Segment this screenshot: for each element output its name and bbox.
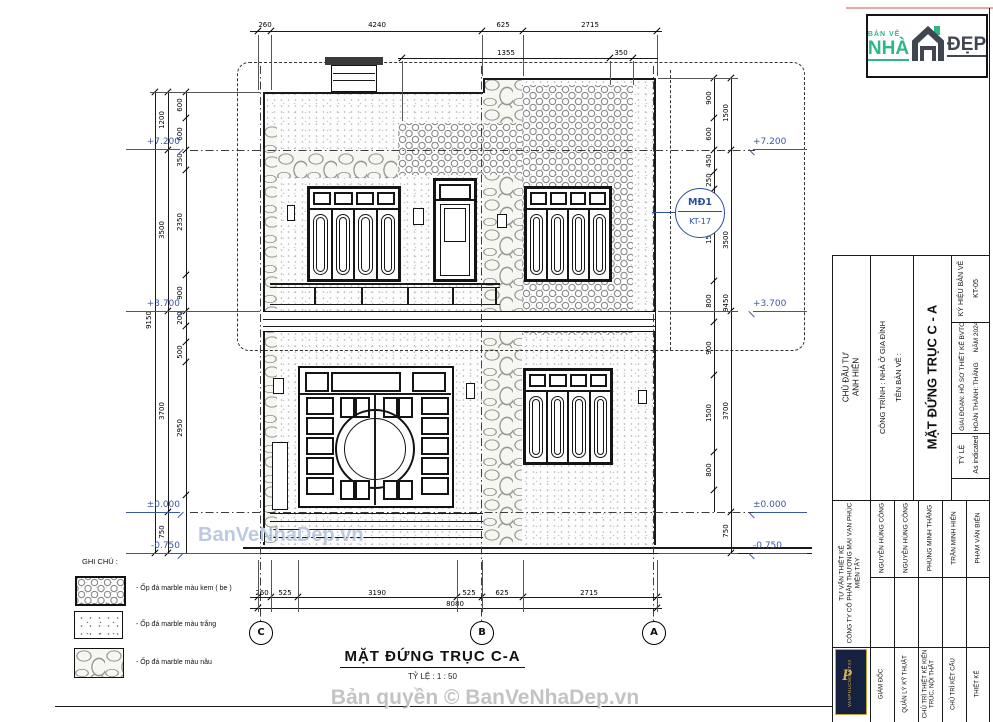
dim-label: 2350 (176, 213, 184, 231)
vanphuc-logo: P VANPHUCMIENTAY (835, 649, 867, 715)
railing-post (452, 287, 454, 304)
window-transom (526, 371, 610, 392)
window-leaves (527, 210, 609, 279)
wall-lamp (413, 208, 424, 225)
dim-label: 900 (705, 91, 713, 104)
legend-swatch-stone (74, 648, 124, 678)
leaf (548, 210, 569, 279)
titleblock-border (870, 577, 990, 578)
axis-line-a (653, 66, 654, 621)
level-marker: -0.750 (126, 541, 180, 554)
pane (570, 192, 587, 205)
leaf (378, 210, 399, 279)
legend-label: - Ốp đá marble màu nâu (136, 659, 212, 667)
pane (550, 192, 567, 205)
investor-name: ANH HIỂN (852, 358, 862, 396)
legend-swatch-hex (75, 576, 126, 606)
gate-square (398, 397, 413, 418)
railing-top (270, 283, 500, 285)
louver (529, 396, 543, 458)
person-name: NGUYỄN HÙNG CÔNG (895, 500, 919, 577)
titleblock-border (951, 478, 990, 479)
ext-line (271, 560, 272, 612)
pilaster (272, 442, 288, 510)
name-text: NGUYỄN HÙNG CÔNG (878, 503, 888, 573)
pane (589, 192, 606, 205)
level-marker: ±0.000 (753, 500, 807, 513)
role-text: CHỦ TRÌ THIẾT KẾ KIẾN TRÚC, NỘI THẤT (923, 648, 937, 721)
dim-label: 3700 (158, 402, 166, 420)
line (333, 73, 375, 74)
window-ground-right (523, 368, 613, 465)
name-text: TRẦN MINH HIỂN (950, 511, 960, 564)
house-icon (908, 25, 948, 68)
dim-label: 1355 (497, 49, 515, 57)
step-line (270, 521, 483, 522)
dim-label: 800 (705, 294, 713, 307)
window-upper-right (524, 186, 612, 282)
logo-text-left: BẢN VẼ NHÀ (868, 31, 909, 61)
name-text: PHÙNG MINH THẮNG (926, 505, 936, 571)
ext-line (523, 560, 524, 612)
pane (356, 192, 374, 205)
level-marker: -0.750 (753, 541, 807, 554)
drawing-sheet: 260 4240 625 2715 1355 350 260 525 3190 … (0, 0, 993, 722)
parapet-step (483, 78, 485, 93)
level-marker: +7.200 (753, 137, 807, 150)
role-text: THIẾT KẾ (974, 671, 981, 698)
person-name: TRẦN MINH HIỂN (943, 500, 967, 577)
name-text: NGUYỄN HÙNG CÔNG (902, 503, 912, 573)
titleblock-sheet-title: MẶT ĐỨNG TRỤC C - A (914, 255, 952, 500)
gate-panel (421, 437, 449, 455)
legend-label: - Ốp đá marble màu kem ( be ) (136, 585, 232, 593)
louver (551, 214, 564, 275)
dim-label: 500 (176, 345, 184, 358)
level-line-7200 (190, 150, 755, 151)
dim-label: 2715 (580, 589, 598, 597)
leaf (310, 210, 333, 279)
step-line (270, 513, 483, 514)
dim-label: 1500 (705, 404, 713, 422)
consultant-label: TƯ VẤN THIẾT KẾ (839, 545, 847, 601)
leaf (526, 392, 548, 462)
dim-label: 525 (462, 589, 475, 597)
dim-label: 600 (705, 127, 713, 140)
gate-panel (306, 417, 334, 435)
dim-line (250, 31, 662, 32)
ext-line (298, 560, 299, 612)
dim-label-total: 8080 (446, 600, 464, 608)
callout-sheet: KT-17 (676, 217, 724, 226)
code-label: KÝ HIỆU BẢN VẼ (957, 261, 967, 317)
ext-line (482, 560, 483, 612)
dim-line (155, 92, 156, 553)
dim-label: 350 (614, 49, 627, 57)
dim-label: 2715 (581, 21, 599, 29)
pane (313, 192, 331, 205)
grid-bubble-c: C (249, 621, 273, 645)
watermark-mid: BanVeNhaDep.vn (198, 524, 364, 547)
callout-leader (652, 212, 676, 213)
dim-label: 350 (176, 153, 184, 166)
ext-line (402, 61, 403, 121)
dim-label: 900 (176, 286, 184, 299)
sheet-name-label: TÊN BẢN VẼ : (894, 353, 904, 402)
floor-slab (263, 311, 655, 332)
dim-label: 2950 (176, 419, 184, 437)
dim-label-total: 9150 (145, 311, 153, 329)
gate-square (355, 480, 370, 500)
dim-label: 4240 (368, 21, 386, 29)
gate-panel (421, 397, 449, 415)
code-value: KT-05 (972, 279, 982, 298)
gate-transom-pane (305, 372, 329, 392)
louver (551, 396, 565, 458)
ext-line (658, 553, 738, 554)
dim-line (168, 92, 169, 553)
dim-label: 625 (496, 21, 509, 29)
line (333, 80, 375, 81)
leaf (591, 392, 611, 462)
leaf (333, 210, 356, 279)
finish-label: HOÀN THÀNH: THÁNG (972, 362, 982, 431)
dim-label: 800 (705, 463, 713, 476)
person-name: PHẠM VĂN BIỂN (967, 500, 991, 577)
gate-panel (306, 397, 334, 415)
watermark-bottom: Bản quyền © BanVeNhaDep.vn (295, 686, 675, 710)
ext-line (258, 35, 259, 90)
louver (594, 396, 608, 458)
dim-line (250, 608, 662, 609)
dashed-line-vertical (670, 70, 671, 350)
dim-line (398, 58, 658, 59)
role-text: GIÁM ĐỐC (878, 669, 885, 699)
legend-swatch-dots (74, 611, 123, 639)
gate-square (398, 480, 413, 500)
ext-line (271, 35, 272, 90)
leaf (569, 392, 591, 462)
dim-label: 450 (705, 154, 713, 167)
person-role: GIÁM ĐỐC (870, 648, 894, 721)
dim-label: 3700 (722, 402, 730, 420)
dim-line (714, 78, 715, 512)
window-leaves (310, 210, 398, 279)
gate-transom-pane (331, 372, 401, 392)
titleblock-project: CÔNG TRÌNH : NHÀ Ở GIA ĐÌNH TÊN BẢN VẼ : (869, 255, 912, 500)
pane (529, 374, 546, 387)
louver (572, 396, 586, 458)
dim-label: 3500 (722, 231, 730, 249)
callout-code: MĐ1 (676, 197, 724, 208)
titleblock-consultant: TƯ VẤN THIẾT KẾ CÔNG TY CỔ PHẦN THƯƠNG M… (832, 500, 870, 647)
louver (572, 214, 585, 275)
dim-label: 1200 (158, 111, 166, 129)
person-role: THIẾT KẾ (966, 648, 990, 721)
scale-value: As indicated (972, 435, 982, 473)
window-leaves (526, 392, 610, 462)
dim-label: 750 (158, 525, 166, 538)
level-marker: +3.700 (753, 299, 807, 312)
wall-lamp (497, 214, 507, 228)
titleblock-code: KÝ HIỆU BẢN VẼ KT-05 (950, 255, 989, 322)
gate-panel (421, 477, 449, 495)
dim-label: 1500 (722, 104, 730, 122)
parapet-top-right (483, 78, 655, 80)
gate-square (340, 480, 355, 500)
dim-label: 750 (722, 524, 730, 537)
leaf (355, 210, 378, 279)
door-panel-inner (444, 208, 466, 242)
titleblock-investor: CHỦ ĐẦU TƯ ANH HIỂN (833, 255, 871, 500)
consultant-company: CÔNG TY CỔ PHẦN THƯƠNG MẠI VẠN PHÚC MIỀN… (847, 500, 863, 647)
gate-panel (306, 477, 334, 495)
dim-label: 3500 (158, 221, 166, 239)
ext-line (658, 311, 738, 312)
callout-bubble: MĐ1 KT-17 (675, 188, 725, 238)
ext-line (657, 35, 658, 76)
sheet-title: MẶT ĐỨNG TRỤC C - A (926, 305, 940, 450)
person-name: NGUYỄN HÙNG CÔNG (871, 500, 895, 577)
drawing-scale-note: TỶ LỆ : 1 : 50 (380, 672, 485, 682)
railing-post (361, 287, 363, 304)
railing-post (314, 287, 316, 304)
leaf (569, 210, 590, 279)
logo-name-text: NHÀ (868, 39, 909, 61)
level-marker: +3.700 (126, 299, 180, 312)
leaf (548, 392, 570, 462)
dim-label-total: 9450 (722, 294, 730, 312)
door-panel (440, 204, 470, 276)
grid-bubble-a: A (642, 621, 666, 645)
dim-label: 3190 (368, 589, 386, 597)
gate-panel (306, 457, 334, 475)
wall-lamp (638, 390, 647, 404)
pane (377, 192, 395, 205)
person-role: CHỦ TRÌ KẾT CẤU (942, 648, 966, 721)
window-upper-left (307, 186, 401, 282)
door-leaf (436, 201, 474, 279)
person-name: PHÙNG MINH THẮNG (919, 500, 943, 577)
ground-line (243, 547, 812, 549)
leaf (590, 210, 609, 279)
window-transom (527, 189, 609, 210)
ext-line (658, 78, 738, 79)
ext-line (258, 560, 259, 612)
leaf (527, 210, 548, 279)
red-top-line (846, 7, 993, 9)
legend-title: GHI CHÚ : (82, 557, 118, 566)
dim-label: 260 (258, 21, 271, 29)
louver (530, 214, 543, 275)
dim-label: 900 (705, 341, 713, 354)
louver (381, 214, 396, 275)
role-text: CHỦ TRÌ KẾT CẤU (950, 658, 957, 710)
gate-panel (306, 437, 334, 455)
chimney-body (331, 65, 377, 92)
year-label: NĂM 2024 (972, 322, 982, 353)
balcony-edge (270, 304, 500, 305)
pane (590, 374, 607, 387)
louver (313, 214, 328, 275)
person-role: CHỦ TRÌ THIẾT KẾ KIẾN TRÚC, NỘI THẤT (918, 648, 942, 721)
pane (334, 192, 352, 205)
scale-label: TỶ LỆ (958, 445, 968, 464)
line (263, 319, 655, 320)
logo-suffix-text: ĐẸP (947, 35, 986, 57)
callout-divider (678, 211, 722, 212)
louver (593, 214, 606, 275)
ext-line (482, 35, 483, 76)
person-role: QUẢN LÝ KỸ THUẬT (894, 648, 918, 721)
door-transom (436, 181, 474, 201)
legend-label: - Ốp đá marble màu trắng (136, 621, 216, 629)
pane (570, 374, 587, 387)
ext-line (657, 560, 658, 612)
titleblock-stage: GIAI ĐOẠN: HỒ SƠ THIẾT KẾ BVTC HOÀN THÀN… (950, 321, 989, 432)
ext-line (523, 35, 524, 76)
door-upper-balcony (433, 178, 477, 282)
gate-panel (421, 417, 449, 435)
dim-label: 525 (278, 589, 291, 597)
pane (549, 374, 566, 387)
drawing-title: MẶT ĐỨNG TRỤC C-A (340, 648, 525, 668)
dim-label: 625 (495, 589, 508, 597)
finish-year: HOÀN THÀNH: THÁNG NĂM 2024 (972, 322, 982, 432)
vanphuc-logo-text: VANPHUCMIENTAY (846, 652, 854, 714)
wall-lamp (287, 205, 295, 221)
level-marker: ±0.000 (126, 500, 180, 513)
stage-label: GIAI ĐOẠN: HỒ SƠ THIẾT KẾ BVTC (958, 322, 968, 431)
line (263, 326, 655, 327)
pane (439, 184, 471, 200)
dim-label: 250 (705, 173, 713, 186)
ext-line (610, 61, 611, 85)
ext-line (633, 61, 634, 85)
railing-post (495, 287, 497, 304)
gate-panel (421, 457, 449, 475)
dim-label: 600 (176, 98, 184, 111)
gate-mullion (374, 395, 376, 505)
parapet-top-left (263, 92, 483, 94)
project-label: CÔNG TRÌNH : NHÀ Ở GIA ĐÌNH (878, 321, 888, 434)
investor-label: CHỦ ĐẦU TƯ (842, 352, 852, 402)
gate-square (383, 480, 398, 500)
louver (336, 214, 351, 275)
ext-line (150, 92, 260, 93)
axis-line-b (481, 66, 482, 621)
role-text: QUẢN LÝ KỸ THUẬT (902, 655, 909, 713)
gate-transom-pane (412, 372, 446, 392)
chimney-cap (325, 57, 383, 65)
main-gate (298, 366, 454, 508)
window-transom (310, 189, 398, 210)
wall-lamp (466, 383, 475, 399)
railing-top2 (270, 287, 500, 288)
grid-bubble-b: B (470, 621, 494, 645)
titleblock-scale: TỶ LỆ As indicated (950, 432, 989, 477)
railing-post (407, 287, 409, 304)
ext-line (457, 560, 458, 612)
louver (358, 214, 373, 275)
wall-lamp (273, 378, 284, 394)
sheet-border-right (989, 8, 990, 722)
level-marker: +7.200 (126, 137, 180, 150)
name-text: PHẠM VĂN BIỂN (974, 513, 984, 564)
logo-banvenhadep: BẢN VẼ NHÀ ĐẸP (866, 14, 988, 78)
pane (530, 192, 547, 205)
